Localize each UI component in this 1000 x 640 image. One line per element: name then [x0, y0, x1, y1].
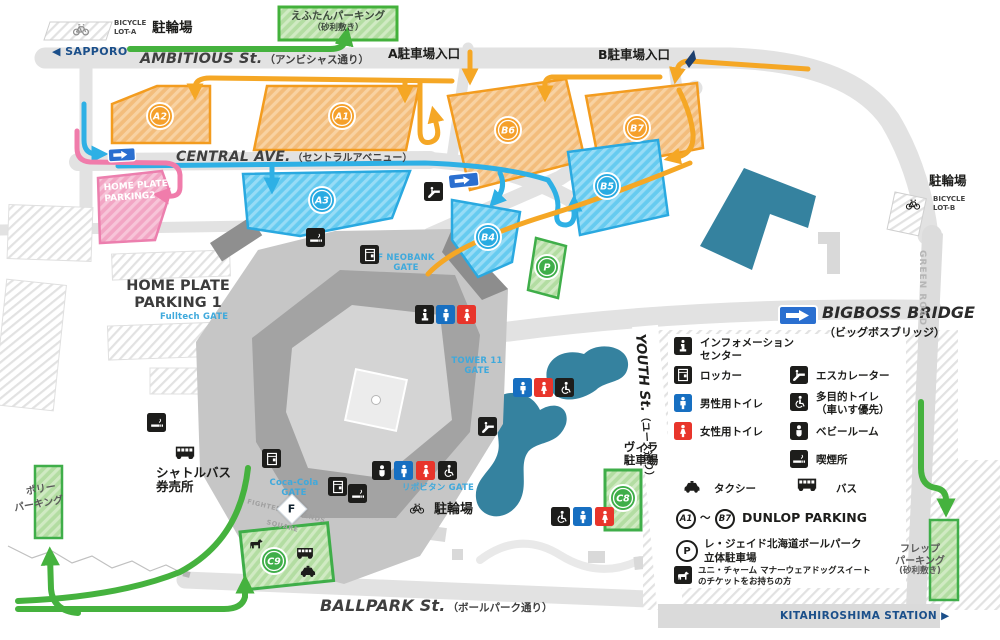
legend-baby-label: ベビールーム	[816, 426, 879, 439]
central-ave-label: CENTRAL AVE.（セントラルアベニュー）	[176, 147, 412, 165]
shuttle-bus-icon	[166, 442, 204, 464]
legend-dunlop-tilde: ～	[700, 512, 711, 525]
locker-icon	[360, 245, 379, 264]
badge-a3: A3	[314, 196, 329, 207]
legend-male-icon	[674, 394, 692, 412]
male-toilet-icon	[436, 305, 455, 324]
legend-male-label: 男性用トイレ	[700, 398, 763, 411]
baby-room-icon	[372, 461, 391, 480]
legend-taxi-icon	[678, 478, 706, 496]
bicycle-lot-b-line1: BICYCLE	[933, 195, 965, 204]
bicycle-lot-a-line1: BICYCLE	[114, 19, 146, 28]
ballpark-parking-map: A2 A1 B6 B7 A3 B4 B5 P C8 C9 BICYCLE LOT…	[0, 0, 1000, 640]
legend-multi-line1: 多目的トイレ	[816, 391, 879, 404]
legend-smoking-icon	[790, 450, 808, 468]
legend-p-line1: レ・ジェイド北海道ボールパーク	[704, 538, 862, 551]
teal-building	[700, 168, 816, 270]
bigboss-bridge-ja: （ビッグボスブリッジ）	[824, 327, 945, 340]
female-toilet-icon	[416, 461, 435, 480]
frep-line3: (砂利敷き)	[888, 567, 952, 577]
green-road-label: GREEN ROAD	[917, 250, 927, 326]
eftan-line2: （砂利敷き）	[281, 23, 395, 34]
homeplate1-line1: HOME PLATE	[118, 278, 238, 295]
fneobank-gate-label: F NEOBANK GATE	[374, 253, 438, 273]
youth-ja: （ユース通り）	[638, 411, 654, 481]
legend-bus-label: バス	[836, 483, 857, 496]
legend-smoking-label: 喫煙所	[816, 454, 848, 467]
male-toilet-icon	[513, 378, 532, 397]
badge-a2: A2	[152, 112, 167, 123]
shuttle-line2: 券売所	[156, 480, 231, 494]
ambitious-ja: （アンビシャス通り）	[264, 54, 369, 66]
tower11-gate-label: TOWER 11 GATE	[450, 356, 504, 376]
frep-line1: フレップ	[888, 544, 952, 556]
locker-icon	[328, 477, 347, 496]
central-en: CENTRAL AVE.	[176, 149, 291, 165]
female-toilet-icon	[595, 507, 614, 526]
male-toilet-icon	[573, 507, 592, 526]
badge-b7: B7	[630, 124, 644, 135]
entrance-b-label: B駐車場入口	[598, 48, 670, 62]
legend-badge-a1: A1	[676, 509, 696, 529]
taxi-icon	[294, 563, 322, 580]
legend-dog-icon	[674, 566, 692, 584]
badge-c9: C9	[267, 557, 281, 568]
legend-taxi-label: タクシー	[714, 483, 756, 496]
legend-female-icon	[674, 422, 692, 440]
badge-p: P	[544, 263, 551, 274]
youth-en: YOUTH St.	[632, 333, 653, 412]
wheelchair-icon	[551, 507, 570, 526]
frep-parking-label: フレップ パーキング (砂利敷き)	[888, 544, 952, 577]
wheelchair-icon	[438, 461, 457, 480]
bicycle-south-label: 駐輪場	[434, 503, 473, 518]
badge-b6: B6	[501, 126, 515, 137]
bicycle-lot-a-jp: 駐輪場	[152, 21, 193, 37]
female-toilet-icon	[534, 378, 553, 397]
bigboss-bridge-en: BIGBOSS BRIDGE	[822, 304, 975, 322]
info-icon	[415, 305, 434, 324]
escalator-icon	[478, 417, 497, 436]
smoking-icon	[348, 484, 367, 503]
bicycle-icon	[404, 500, 430, 515]
legend-escalator-label: エスカレーター	[816, 370, 890, 383]
bicycle-lot-a-label: BICYCLE LOT-A	[114, 19, 146, 37]
bus-icon	[288, 544, 322, 563]
legend-dunlop-label: DUNLOP PARKING	[742, 511, 867, 525]
legend-info-line2: センター	[700, 350, 742, 363]
legend-dog-line2: のチケットをお持ちの方	[698, 577, 792, 588]
dog-icon	[248, 535, 264, 551]
male-toilet-icon	[394, 461, 413, 480]
legend-escalator-icon	[790, 366, 808, 384]
eftan-line1: えふたんパーキング	[281, 10, 395, 23]
fneobank-line1: F NEOBANK	[374, 253, 438, 263]
ballpark-ja: （ボールパーク通り）	[448, 602, 553, 614]
legend-locker-label: ロッカー	[700, 370, 742, 383]
badge-c8: C8	[616, 494, 630, 505]
female-toilet-icon	[457, 305, 476, 324]
shuttle-line1: シャトルバス	[156, 466, 231, 480]
legend-badge-b7: B7	[715, 509, 735, 529]
eftan-parking-label: えふたんパーキング （砂利敷き）	[281, 10, 395, 34]
bicycle-icon	[900, 196, 926, 211]
legend-p-line2: 立体駐車場	[704, 552, 757, 565]
fulltech-gate-label: Fulltech GATE	[160, 312, 228, 322]
ballpark-street-label: BALLPARK St.（ボールパーク通り）	[320, 597, 553, 615]
ambitious-en: AMBITIOUS St.	[140, 51, 262, 67]
shuttle-label: シャトルバス 券売所	[156, 466, 231, 495]
legend-locker-icon	[674, 366, 692, 384]
kitahiroshima-direction: KITAHIROSHIMA STATION ▶	[780, 610, 950, 622]
badge-b5: B5	[600, 182, 614, 193]
homeplate2-label: HOME PLATE PARKING2	[103, 179, 169, 205]
legend-info-line1: インフォメーション	[700, 337, 794, 350]
legend-female-label: 女性用トイレ	[700, 426, 763, 439]
wheelchair-icon	[555, 378, 574, 397]
badge-b4: B4	[481, 233, 495, 244]
legend-wheelchair-icon	[790, 393, 808, 411]
escalator-icon	[424, 182, 443, 201]
sapporo-direction: ◀ SAPPORO	[52, 46, 128, 59]
legend-multi-line2: （車いす優先）	[816, 404, 890, 417]
homeplate1-line2: PARKING 1	[118, 295, 238, 312]
bicycle-icon	[66, 20, 96, 37]
badge-a1: A1	[334, 112, 349, 123]
central-ja: （セントラルアベニュー）	[293, 153, 413, 164]
legend-info-icon	[674, 337, 692, 355]
smoking-icon	[147, 413, 166, 432]
ballpark-en: BALLPARK St.	[320, 596, 446, 615]
lipovitan-gate-label: リポビタン GATE	[402, 483, 474, 493]
entrance-a-label: A駐車場入口	[388, 47, 460, 61]
legend-bus-icon	[788, 474, 826, 496]
bicycle-lot-a-line2: LOT-A	[114, 28, 146, 37]
bicycle-lot-b-jp: 駐輪場	[929, 174, 967, 188]
tower11-line2: GATE	[450, 366, 504, 376]
locker-icon	[262, 449, 281, 468]
tower11-line1: TOWER 11	[450, 356, 504, 366]
fneobank-line2: GATE	[374, 263, 438, 273]
bicycle-lot-b-line2: LOT-B	[933, 204, 965, 213]
cocacola-line1: Coca-Cola	[264, 478, 324, 488]
smoking-icon	[306, 228, 325, 247]
legend-dog-line1: ユニ・チャーム マナーウェアドッグスイート	[698, 566, 871, 577]
legend-baby-icon	[790, 422, 808, 440]
legend-badge-p: P	[676, 540, 698, 562]
ambitious-street-label: AMBITIOUS St.（アンビシャス通り）	[140, 49, 369, 68]
homeplate1-label: HOME PLATE PARKING 1	[118, 278, 238, 311]
bigboss-bridge-sign	[779, 306, 817, 325]
bicycle-lot-b-label: BICYCLE LOT-B	[933, 195, 965, 213]
